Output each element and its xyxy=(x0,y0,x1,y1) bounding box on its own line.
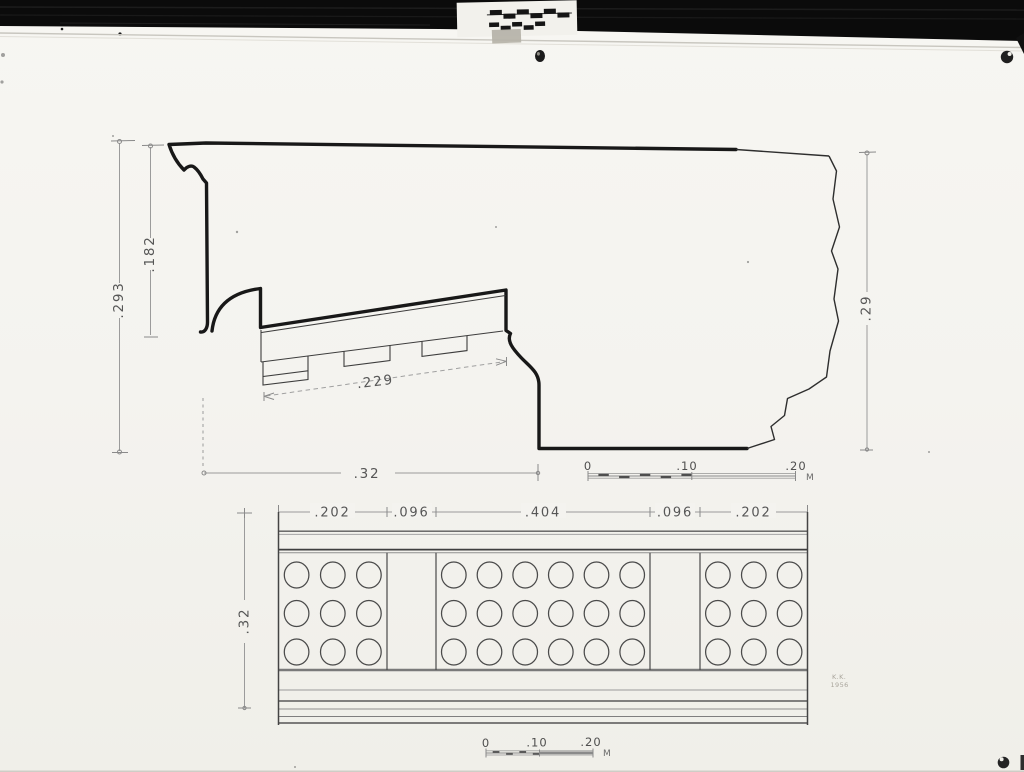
plan-dim-404: .404 xyxy=(525,506,561,521)
dim-label-182: .182 xyxy=(142,235,158,272)
signature: K.K. 1956 xyxy=(831,673,849,689)
step-scale-block xyxy=(490,10,502,15)
punch-hole xyxy=(535,50,545,62)
step-scale-block xyxy=(557,12,569,17)
step-scale-block xyxy=(530,13,542,18)
signature-initials: K.K. xyxy=(832,673,846,681)
step-scale-block xyxy=(524,25,534,30)
dim-label-293: .293 xyxy=(111,281,127,318)
scale-cell xyxy=(506,753,513,755)
step-scale-block xyxy=(535,21,545,26)
scale-upper-0: 0 xyxy=(584,459,592,473)
plan-dim-label-32: .32 xyxy=(237,608,253,635)
tape-fragment xyxy=(492,29,521,44)
step-scale-block xyxy=(489,22,499,27)
scale-upper-20: .20 xyxy=(785,459,806,473)
scale-cell xyxy=(640,474,650,476)
scale-lower-20: .20 xyxy=(580,735,601,749)
plan-dim-202-right: .202 xyxy=(735,506,771,521)
paper-background xyxy=(0,0,1024,772)
scale-cell xyxy=(533,753,540,755)
scale-cell xyxy=(493,751,500,753)
scale-cell xyxy=(619,476,629,478)
plan-dim-202-left: .202 xyxy=(314,506,350,521)
scale-cell xyxy=(681,474,691,476)
scale-upper-10: .10 xyxy=(676,459,697,473)
step-scale-block xyxy=(512,22,522,27)
scale-upper-unit: M xyxy=(806,473,814,483)
photographed-drawing-sheet: .293 .182 .29 .229 xyxy=(0,0,1024,772)
scale-cell xyxy=(661,476,671,478)
scale-cell xyxy=(598,474,608,476)
plan-dim-096-left: .096 xyxy=(393,506,429,521)
scale-lower-10: .10 xyxy=(526,736,547,750)
step-scale-block xyxy=(503,14,515,19)
scale-cell xyxy=(519,751,526,753)
signature-year: 1956 xyxy=(831,681,849,689)
scale-lower-0: 0 xyxy=(482,736,490,750)
step-scale-block xyxy=(544,9,556,14)
plan-dim-096-right: .096 xyxy=(657,506,693,521)
dim-label-29: .29 xyxy=(859,295,875,322)
step-scale-block xyxy=(517,9,529,14)
dim-label-32-section: .32 xyxy=(354,466,381,482)
scale-lower-unit: M xyxy=(603,749,611,759)
